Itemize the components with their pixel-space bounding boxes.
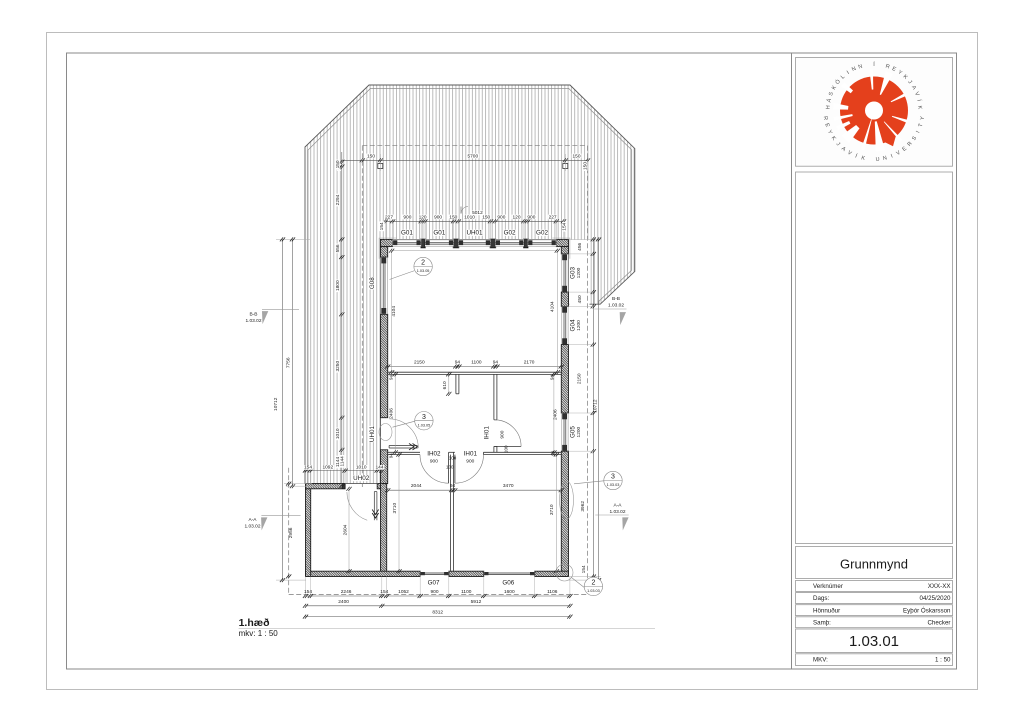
svg-text:H: H — [825, 105, 831, 109]
svg-text:UH02: UH02 — [353, 475, 370, 482]
svg-text:7756: 7756 — [286, 357, 292, 368]
svg-text:154: 154 — [304, 589, 312, 595]
svg-text:3470: 3470 — [503, 483, 514, 489]
svg-text:94: 94 — [450, 483, 456, 489]
svg-text:3710: 3710 — [392, 503, 398, 514]
svg-text:G01: G01 — [401, 230, 413, 237]
svg-text:154: 154 — [304, 465, 312, 471]
svg-text:900: 900 — [430, 458, 438, 464]
svg-text:94: 94 — [549, 375, 554, 381]
svg-text:U: U — [876, 157, 880, 163]
svg-text:5700: 5700 — [467, 153, 478, 159]
svg-text:5912: 5912 — [471, 599, 482, 605]
svg-text:1.03.03: 1.03.03 — [587, 589, 600, 593]
svg-text:2: 2 — [591, 580, 595, 587]
svg-text:1.03.05: 1.03.05 — [418, 423, 431, 427]
svg-text:1092: 1092 — [322, 465, 333, 471]
svg-text:G04: G04 — [570, 319, 577, 331]
svg-text:100: 100 — [446, 465, 454, 470]
svg-text:2044: 2044 — [411, 483, 422, 489]
svg-text:900: 900 — [499, 430, 505, 438]
svg-text:154: 154 — [562, 222, 568, 230]
svg-text:8312: 8312 — [432, 609, 443, 615]
svg-text:150: 150 — [367, 153, 375, 159]
svg-text:2150: 2150 — [577, 373, 583, 384]
svg-text:900: 900 — [527, 214, 535, 220]
svg-text:150: 150 — [449, 214, 457, 220]
svg-text:556: 556 — [335, 244, 341, 252]
svg-text:100: 100 — [449, 456, 457, 461]
svg-text:610: 610 — [442, 381, 448, 389]
svg-text:G07: G07 — [428, 580, 440, 587]
svg-text:10712: 10712 — [592, 399, 598, 413]
svg-text:B-B: B-B — [250, 312, 258, 318]
svg-text:100: 100 — [504, 445, 509, 453]
svg-text:1.03.05: 1.03.05 — [417, 269, 430, 273]
svg-text:150: 150 — [335, 160, 341, 168]
svg-text:G02: G02 — [504, 230, 516, 237]
svg-text:450: 450 — [577, 295, 583, 303]
svg-text:900: 900 — [497, 214, 505, 220]
svg-text:900: 900 — [434, 214, 442, 220]
svg-text:1.03.03: 1.03.03 — [607, 483, 620, 487]
svg-text:1010: 1010 — [335, 428, 341, 439]
svg-text:150: 150 — [583, 162, 589, 170]
svg-text:G01: G01 — [433, 230, 445, 237]
svg-text:Checker: Checker — [927, 619, 950, 626]
svg-text:1100: 1100 — [471, 359, 482, 365]
svg-text:94: 94 — [388, 453, 393, 459]
svg-text:2956: 2956 — [288, 527, 294, 538]
svg-text:1200: 1200 — [576, 426, 582, 437]
svg-text:154: 154 — [581, 565, 587, 573]
svg-text:2400: 2400 — [338, 599, 349, 605]
svg-text:B-B: B-B — [612, 296, 620, 302]
svg-text:900: 900 — [430, 589, 438, 595]
svg-text:1.03.02: 1.03.02 — [609, 509, 625, 515]
svg-text:154: 154 — [379, 222, 385, 230]
svg-text:Dags:: Dags: — [813, 595, 829, 602]
svg-text:A-A: A-A — [249, 517, 258, 523]
svg-text:120: 120 — [512, 214, 520, 220]
svg-text:1106: 1106 — [547, 589, 558, 595]
svg-text:154: 154 — [380, 589, 388, 595]
svg-text:UH01: UH01 — [466, 230, 483, 237]
svg-text:MKV:: MKV: — [813, 657, 828, 664]
svg-text:IH02: IH02 — [427, 450, 441, 457]
svg-text:227: 227 — [549, 214, 557, 220]
svg-text:1.03.02: 1.03.02 — [244, 524, 260, 530]
svg-text:1010: 1010 — [356, 465, 367, 471]
svg-text:4104: 4104 — [391, 306, 397, 317]
svg-text:900: 900 — [466, 458, 474, 464]
svg-text:UH01: UH01 — [369, 425, 376, 442]
svg-text:3: 3 — [422, 414, 426, 421]
svg-text:227: 227 — [385, 214, 393, 220]
svg-text:A-A: A-A — [614, 502, 623, 508]
svg-text:3: 3 — [611, 474, 615, 481]
svg-text:3250: 3250 — [335, 361, 341, 372]
svg-text:2: 2 — [421, 260, 425, 267]
svg-text:Hönnuður: Hönnuður — [813, 607, 840, 614]
svg-text:G06: G06 — [502, 580, 514, 587]
svg-text:G03: G03 — [570, 267, 577, 279]
svg-text:456: 456 — [577, 242, 583, 250]
svg-text:2604: 2604 — [342, 524, 348, 535]
svg-text:150: 150 — [572, 153, 580, 159]
svg-text:2246: 2246 — [341, 589, 352, 595]
svg-text:G02: G02 — [536, 230, 548, 237]
svg-text:2406: 2406 — [389, 408, 395, 419]
svg-text:4104: 4104 — [550, 301, 556, 312]
svg-text:5012: 5012 — [472, 210, 483, 216]
svg-text:mkv: 1 : 50: mkv: 1 : 50 — [239, 629, 279, 638]
svg-text:2170: 2170 — [524, 359, 535, 365]
svg-text:3962: 3962 — [580, 501, 586, 512]
svg-text:1800: 1800 — [335, 280, 341, 291]
svg-text:1100: 1100 — [461, 589, 472, 595]
svg-text:Eyþór Óskarsson: Eyþór Óskarsson — [903, 607, 951, 614]
svg-text:1052: 1052 — [398, 589, 409, 595]
svg-text:1200: 1200 — [576, 320, 582, 331]
svg-text:Grunnmynd: Grunnmynd — [840, 557, 908, 572]
svg-text:04/25/2020: 04/25/2020 — [920, 595, 952, 602]
svg-text:2150: 2150 — [414, 359, 425, 365]
svg-text:1200: 1200 — [576, 267, 582, 278]
svg-text:900: 900 — [403, 214, 411, 220]
svg-text:1.03.02: 1.03.02 — [245, 318, 261, 324]
svg-text:1.03.01: 1.03.01 — [849, 633, 899, 650]
svg-text:1 : 50: 1 : 50 — [935, 657, 951, 664]
svg-text:IH01: IH01 — [483, 426, 490, 440]
svg-text:2294: 2294 — [335, 194, 341, 205]
svg-text:G05: G05 — [570, 426, 577, 438]
svg-text:Verknúmer: Verknúmer — [813, 583, 843, 590]
svg-text:10712: 10712 — [273, 397, 279, 411]
svg-text:144: 144 — [375, 465, 383, 471]
svg-text:1.03.02: 1.03.02 — [608, 302, 624, 308]
svg-text:1144: 1144 — [339, 456, 345, 467]
svg-text:94: 94 — [551, 450, 556, 456]
svg-text:94: 94 — [493, 359, 499, 365]
svg-text:Samþ:: Samþ: — [813, 619, 831, 626]
svg-text:3710: 3710 — [549, 504, 555, 515]
svg-text:1600: 1600 — [504, 589, 515, 595]
svg-text:94: 94 — [388, 375, 393, 381]
svg-text:120: 120 — [419, 214, 427, 220]
svg-text:1.hæð: 1.hæð — [239, 617, 270, 629]
svg-text:2406: 2406 — [553, 409, 559, 420]
svg-text:G08: G08 — [369, 277, 376, 289]
svg-text:IH01: IH01 — [464, 450, 478, 457]
svg-text:XXX-XX: XXX-XX — [928, 583, 951, 590]
svg-text:94: 94 — [455, 359, 461, 365]
